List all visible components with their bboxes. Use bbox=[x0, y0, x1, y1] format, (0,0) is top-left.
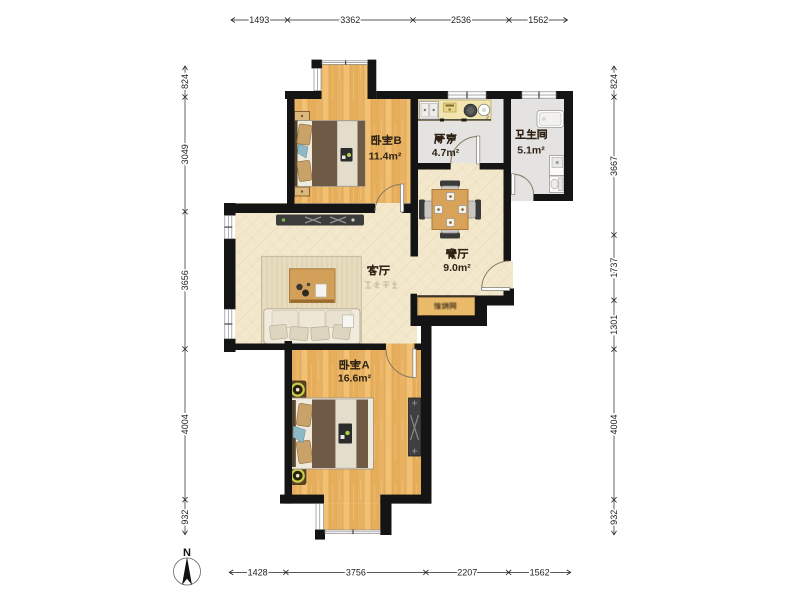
svg-text:4.7m²: 4.7m² bbox=[432, 147, 460, 159]
svg-text:1428: 1428 bbox=[248, 567, 268, 577]
svg-text:1737: 1737 bbox=[609, 258, 619, 278]
svg-text:932: 932 bbox=[609, 510, 619, 525]
svg-text:3362: 3362 bbox=[340, 15, 360, 25]
svg-text:1493: 1493 bbox=[249, 15, 269, 25]
svg-text:3049: 3049 bbox=[180, 144, 190, 164]
svg-text:3667: 3667 bbox=[609, 156, 619, 176]
svg-text:2536: 2536 bbox=[451, 15, 471, 25]
svg-text:1301: 1301 bbox=[609, 315, 619, 335]
svg-text:4004: 4004 bbox=[180, 414, 190, 434]
svg-text:4004: 4004 bbox=[609, 414, 619, 434]
svg-text:1562: 1562 bbox=[530, 567, 550, 577]
svg-text:N: N bbox=[183, 547, 191, 559]
svg-text:824: 824 bbox=[609, 74, 619, 89]
svg-text:932: 932 bbox=[180, 510, 190, 525]
svg-text:2207: 2207 bbox=[457, 567, 477, 577]
svg-text:5.1m²: 5.1m² bbox=[517, 145, 545, 157]
svg-text:B: B bbox=[393, 135, 401, 147]
svg-text:A: A bbox=[361, 359, 369, 371]
svg-text:11.4m²: 11.4m² bbox=[369, 151, 402, 163]
svg-text:16.6m²: 16.6m² bbox=[338, 373, 372, 385]
svg-text:3756: 3756 bbox=[346, 567, 366, 577]
svg-text:1562: 1562 bbox=[528, 15, 548, 25]
svg-text:3656: 3656 bbox=[180, 270, 190, 290]
svg-text:824: 824 bbox=[180, 74, 190, 89]
svg-text:9.0m²: 9.0m² bbox=[443, 262, 471, 274]
